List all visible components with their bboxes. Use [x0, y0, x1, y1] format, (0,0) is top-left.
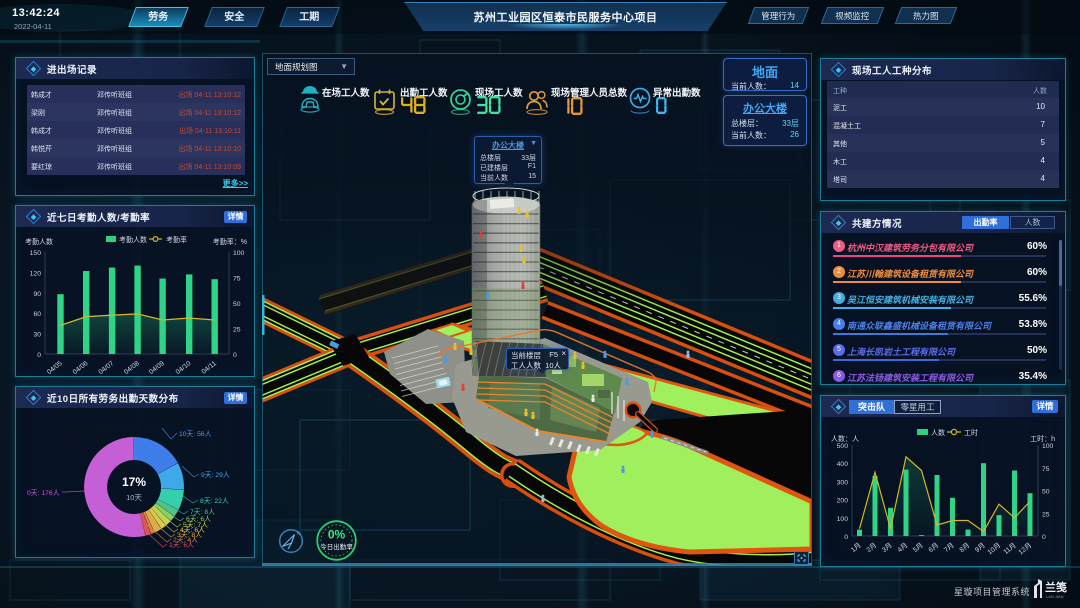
- svg-text:LAN JIAN: LAN JIAN: [1046, 594, 1064, 599]
- svg-text:考勤人数: 考勤人数: [25, 237, 53, 246]
- svg-text:50: 50: [1042, 489, 1050, 496]
- svg-text:考勤人数: 考勤人数: [119, 235, 147, 244]
- svg-text:90: 90: [33, 291, 41, 298]
- svg-text:30: 30: [33, 332, 41, 339]
- svg-text:0天: 176人: 0天: 176人: [27, 489, 60, 497]
- svg-text:100: 100: [837, 516, 849, 523]
- svg-text:1月: 1月: [849, 541, 862, 554]
- svg-text:04/05: 04/05: [46, 360, 64, 376]
- svg-text:今日出勤率: 今日出勤率: [320, 542, 353, 551]
- svg-text:0: 0: [844, 534, 848, 541]
- svg-text:人数: 人数: [931, 428, 945, 437]
- svg-text:工时：h: 工时：h: [1030, 434, 1055, 443]
- svg-text:10天: 10天: [126, 493, 142, 502]
- svg-text:0: 0: [37, 352, 41, 359]
- svg-text:9月: 9月: [973, 541, 986, 554]
- svg-text:04/11: 04/11: [201, 360, 218, 376]
- svg-text:25: 25: [1042, 511, 1050, 518]
- svg-text:2月: 2月: [865, 541, 878, 554]
- svg-text:8月: 8月: [958, 541, 971, 554]
- svg-text:04/06: 04/06: [72, 360, 90, 376]
- svg-text:75: 75: [1042, 466, 1050, 473]
- svg-text:500: 500: [837, 443, 849, 450]
- svg-text:5月: 5月: [911, 541, 924, 554]
- svg-text:11月: 11月: [1002, 541, 1018, 556]
- svg-text:工时: 工时: [964, 428, 978, 437]
- svg-text:考勤率: 考勤率: [166, 235, 187, 244]
- svg-text:17%: 17%: [122, 475, 146, 489]
- svg-text:75: 75: [233, 276, 241, 283]
- svg-text:300: 300: [837, 479, 849, 486]
- svg-text:04/10: 04/10: [175, 360, 193, 376]
- svg-text:60: 60: [33, 311, 41, 318]
- svg-text:0: 0: [1042, 534, 1046, 541]
- svg-text:4月: 4月: [896, 541, 909, 554]
- svg-text:7月: 7月: [942, 541, 955, 554]
- svg-text:10天: 56人: 10天: 56人: [179, 430, 212, 438]
- svg-text:12月: 12月: [1017, 541, 1033, 556]
- svg-text:50: 50: [233, 301, 241, 308]
- svg-text:04/08: 04/08: [123, 360, 141, 376]
- svg-text:9天: 29人: 9天: 29人: [201, 471, 230, 479]
- svg-text:7天: 8人: 7天: 8人: [190, 508, 215, 516]
- svg-text:人数：人: 人数：人: [831, 434, 859, 443]
- svg-text:10月: 10月: [986, 541, 1002, 556]
- svg-text:200: 200: [837, 498, 849, 505]
- svg-text:1天: 6人: 1天: 6人: [169, 541, 194, 549]
- svg-text:8天: 22人: 8天: 22人: [200, 497, 229, 505]
- svg-text:04/07: 04/07: [98, 360, 116, 376]
- svg-text:兰笺: 兰笺: [1045, 580, 1067, 594]
- svg-text:考勤率：%: 考勤率：%: [213, 237, 247, 246]
- svg-text:0%: 0%: [328, 528, 346, 542]
- svg-text:N: N: [297, 531, 301, 537]
- svg-text:25: 25: [233, 327, 241, 334]
- svg-text:400: 400: [837, 461, 849, 468]
- svg-text:150: 150: [30, 250, 42, 257]
- svg-text:0: 0: [233, 352, 237, 359]
- svg-text:6月: 6月: [927, 541, 940, 554]
- svg-text:120: 120: [30, 270, 42, 277]
- svg-text:100: 100: [233, 250, 245, 257]
- svg-text:04/09: 04/09: [148, 360, 166, 376]
- svg-text:3月: 3月: [880, 541, 893, 554]
- svg-text:100: 100: [1042, 443, 1054, 450]
